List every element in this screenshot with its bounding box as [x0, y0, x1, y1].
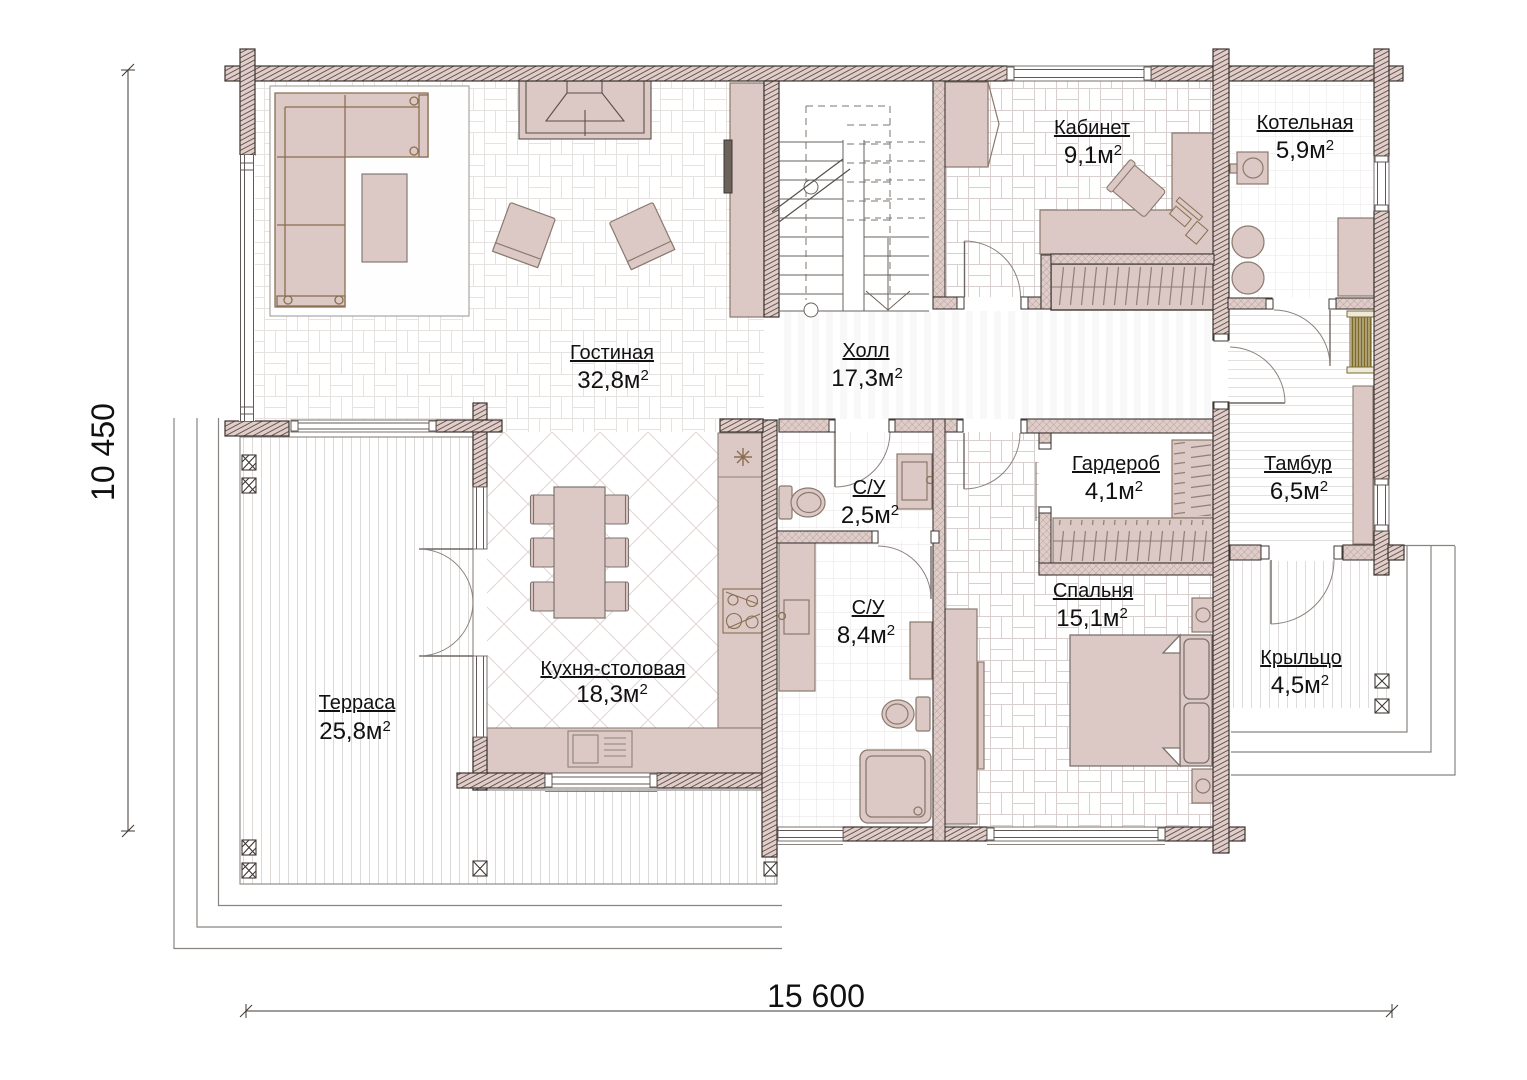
svg-text:25,8м2: 25,8м2 — [319, 718, 391, 745]
svg-text:18,3м2: 18,3м2 — [576, 681, 648, 708]
svg-text:2,5м2: 2,5м2 — [841, 502, 899, 529]
svg-text:4,1м2: 4,1м2 — [1085, 478, 1143, 505]
svg-text:32,8м2: 32,8м2 — [577, 367, 649, 394]
svg-text:Холл: Холл — [842, 340, 889, 362]
svg-text:15,1м2: 15,1м2 — [1056, 605, 1128, 632]
svg-text:Гардероб: Гардероб — [1072, 453, 1160, 475]
svg-text:4,5м2: 4,5м2 — [1271, 672, 1329, 699]
svg-text:С/У: С/У — [853, 477, 886, 499]
svg-text:6,5м2: 6,5м2 — [1270, 478, 1328, 505]
svg-text:Тамбур: Тамбур — [1264, 453, 1332, 475]
svg-text:Крыльцо: Крыльцо — [1260, 647, 1342, 669]
svg-text:10 450: 10 450 — [85, 403, 121, 501]
svg-text:8,4м2: 8,4м2 — [837, 622, 895, 649]
svg-text:Котельная: Котельная — [1257, 112, 1354, 134]
svg-text:5,9м2: 5,9м2 — [1276, 137, 1334, 164]
svg-text:Кабинет: Кабинет — [1054, 117, 1130, 139]
svg-text:Спальня: Спальня — [1053, 580, 1133, 602]
svg-text:Кухня-столовая: Кухня-столовая — [540, 658, 685, 680]
svg-text:15 600: 15 600 — [767, 978, 865, 1014]
svg-text:9,1м2: 9,1м2 — [1064, 142, 1122, 169]
svg-text:Терраса: Терраса — [319, 692, 397, 714]
svg-text:С/У: С/У — [852, 597, 885, 619]
svg-text:17,3м2: 17,3м2 — [831, 365, 903, 392]
svg-text:Гостиная: Гостиная — [570, 342, 654, 364]
